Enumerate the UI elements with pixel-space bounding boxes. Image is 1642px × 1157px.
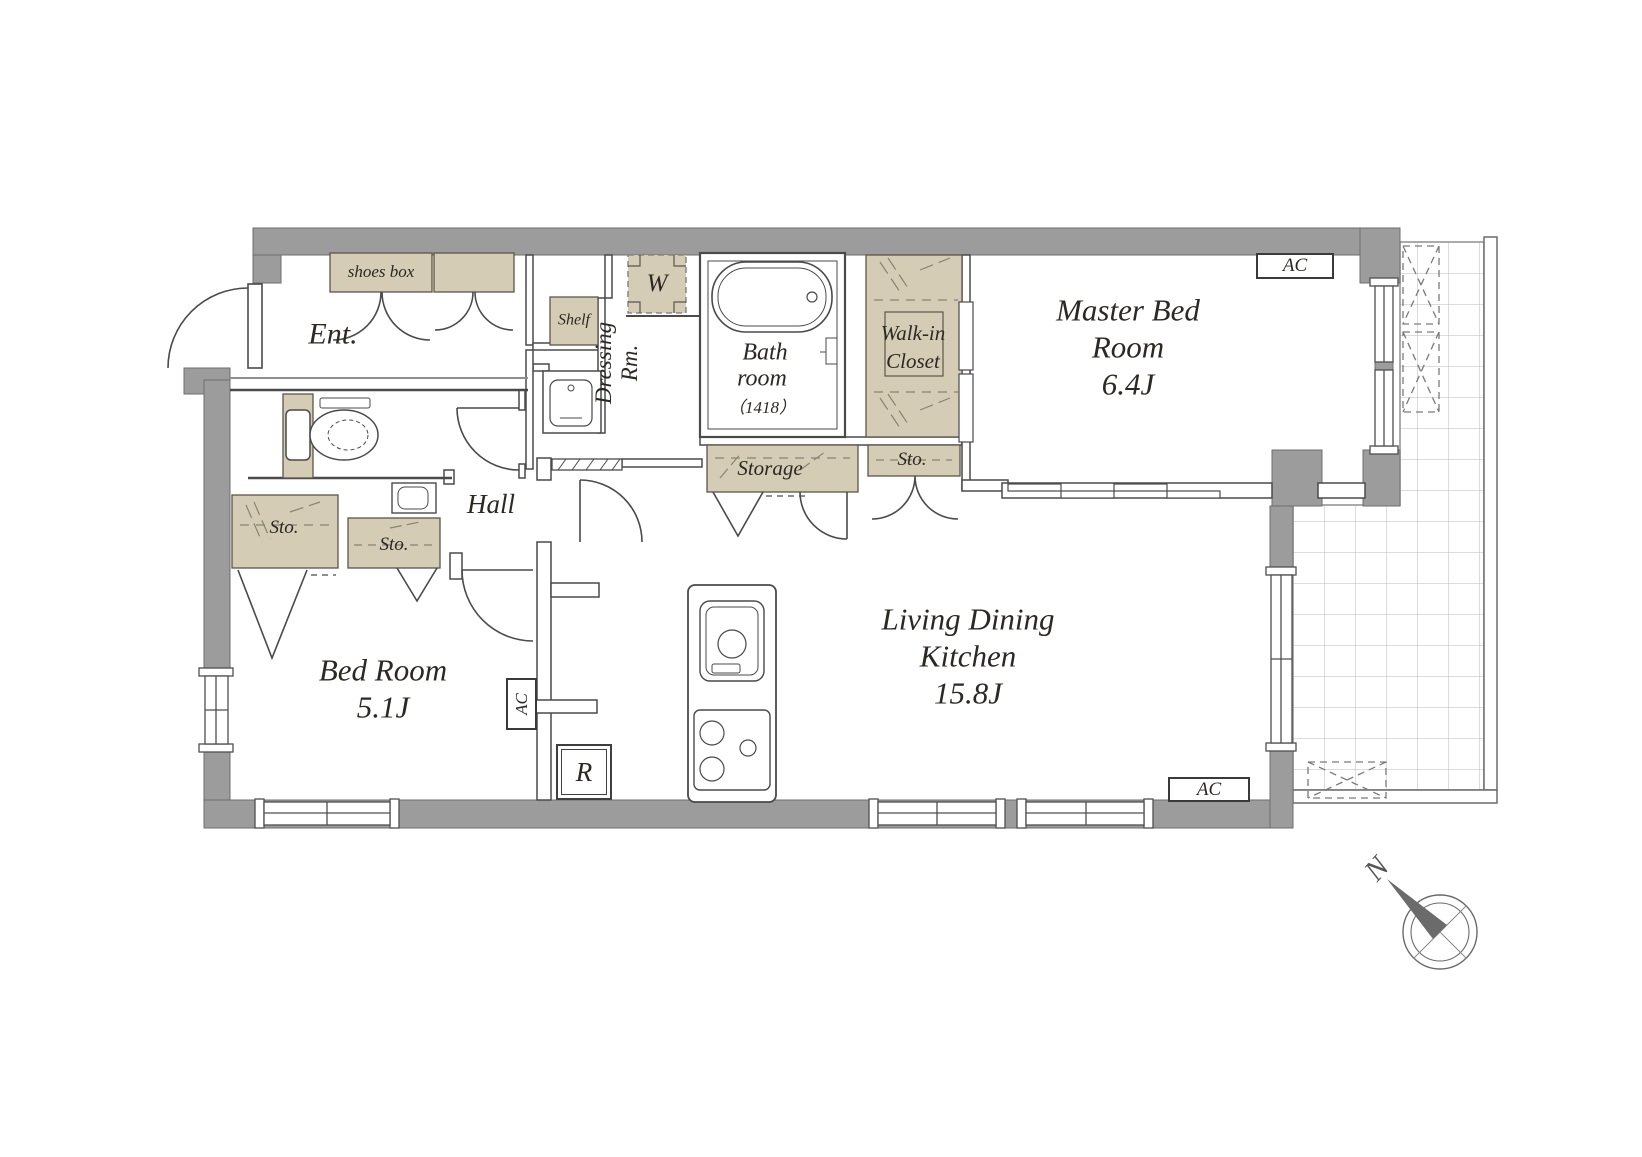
ldk-label-line2: Kitchen xyxy=(920,641,1016,674)
balcony-railing xyxy=(1484,237,1497,790)
compass-needle xyxy=(1387,879,1447,939)
bathroom-label-line1: Bath xyxy=(742,340,787,365)
entrance-door-icon xyxy=(168,284,262,368)
dressing-sliding-door-icon xyxy=(552,459,622,470)
sto-bedroom-right-label: Sto. xyxy=(379,535,408,555)
floor-plan-drawing xyxy=(0,0,1642,1157)
balcony xyxy=(1293,237,1497,803)
hall-label: Hall xyxy=(467,490,515,518)
washer-label: W xyxy=(647,271,668,297)
walk-in-closet-label-line1: Walk-in xyxy=(881,322,946,344)
ldk-balcony-window-icon xyxy=(1266,567,1296,751)
entry-cabinet xyxy=(434,253,514,292)
sto-walkin-label: Sto. xyxy=(897,450,926,470)
ac-unit-bedroom: AC xyxy=(506,678,537,730)
bathroom-label-line2: room xyxy=(737,366,787,391)
hand-basin-icon xyxy=(392,483,436,513)
refrigerator-label: R xyxy=(561,749,607,795)
walk-in-closet xyxy=(866,255,962,437)
stove-icon xyxy=(694,710,770,790)
floor-plan-page: shoes box Ent. Shelf W Dressing Rm. Bath… xyxy=(0,0,1642,1157)
bedroom-side-window-icon xyxy=(199,668,233,752)
dressing-room-label: Dressing Rm. xyxy=(591,322,643,404)
storage-label: Storage xyxy=(737,457,802,479)
storage-fold-door-icon xyxy=(713,492,847,539)
shoes-box-label: shoes box xyxy=(348,263,415,281)
master-bedroom-size-label: 6.4J xyxy=(1102,369,1155,402)
ac-unit-living: AC xyxy=(1168,777,1250,802)
hall-ldk-door-icon xyxy=(580,480,642,542)
ac-unit-master-bedroom: AC xyxy=(1256,253,1334,279)
shelf-label: Shelf xyxy=(558,313,590,330)
walk-in-closet-label-line2: Closet xyxy=(886,350,940,372)
master-bedroom-label-line2: Room xyxy=(1092,332,1164,365)
bathtub-icon xyxy=(712,262,832,332)
entrance-label: Ent. xyxy=(308,318,357,350)
toilet-door-icon xyxy=(457,408,519,470)
bedroom-door-icon xyxy=(462,570,533,641)
master-bedroom-label-line1: Master Bed xyxy=(1056,295,1200,328)
bedroom-label: Bed Room xyxy=(319,655,447,688)
kitchen-island-icon xyxy=(688,585,776,802)
ldk-size-label: 15.8J xyxy=(934,678,1002,711)
compass-icon xyxy=(1387,879,1477,969)
bedroom-bottom-window-icon xyxy=(255,799,399,828)
bedroom-size-label: 5.1J xyxy=(357,692,410,725)
kitchen-sink-icon xyxy=(700,601,764,681)
ldk-label-line1: Living Dining xyxy=(881,604,1054,637)
sto-bedroom-left-label: Sto. xyxy=(269,518,298,538)
bathroom-size-label: （1418） xyxy=(728,399,796,417)
refrigerator: R xyxy=(556,744,612,800)
